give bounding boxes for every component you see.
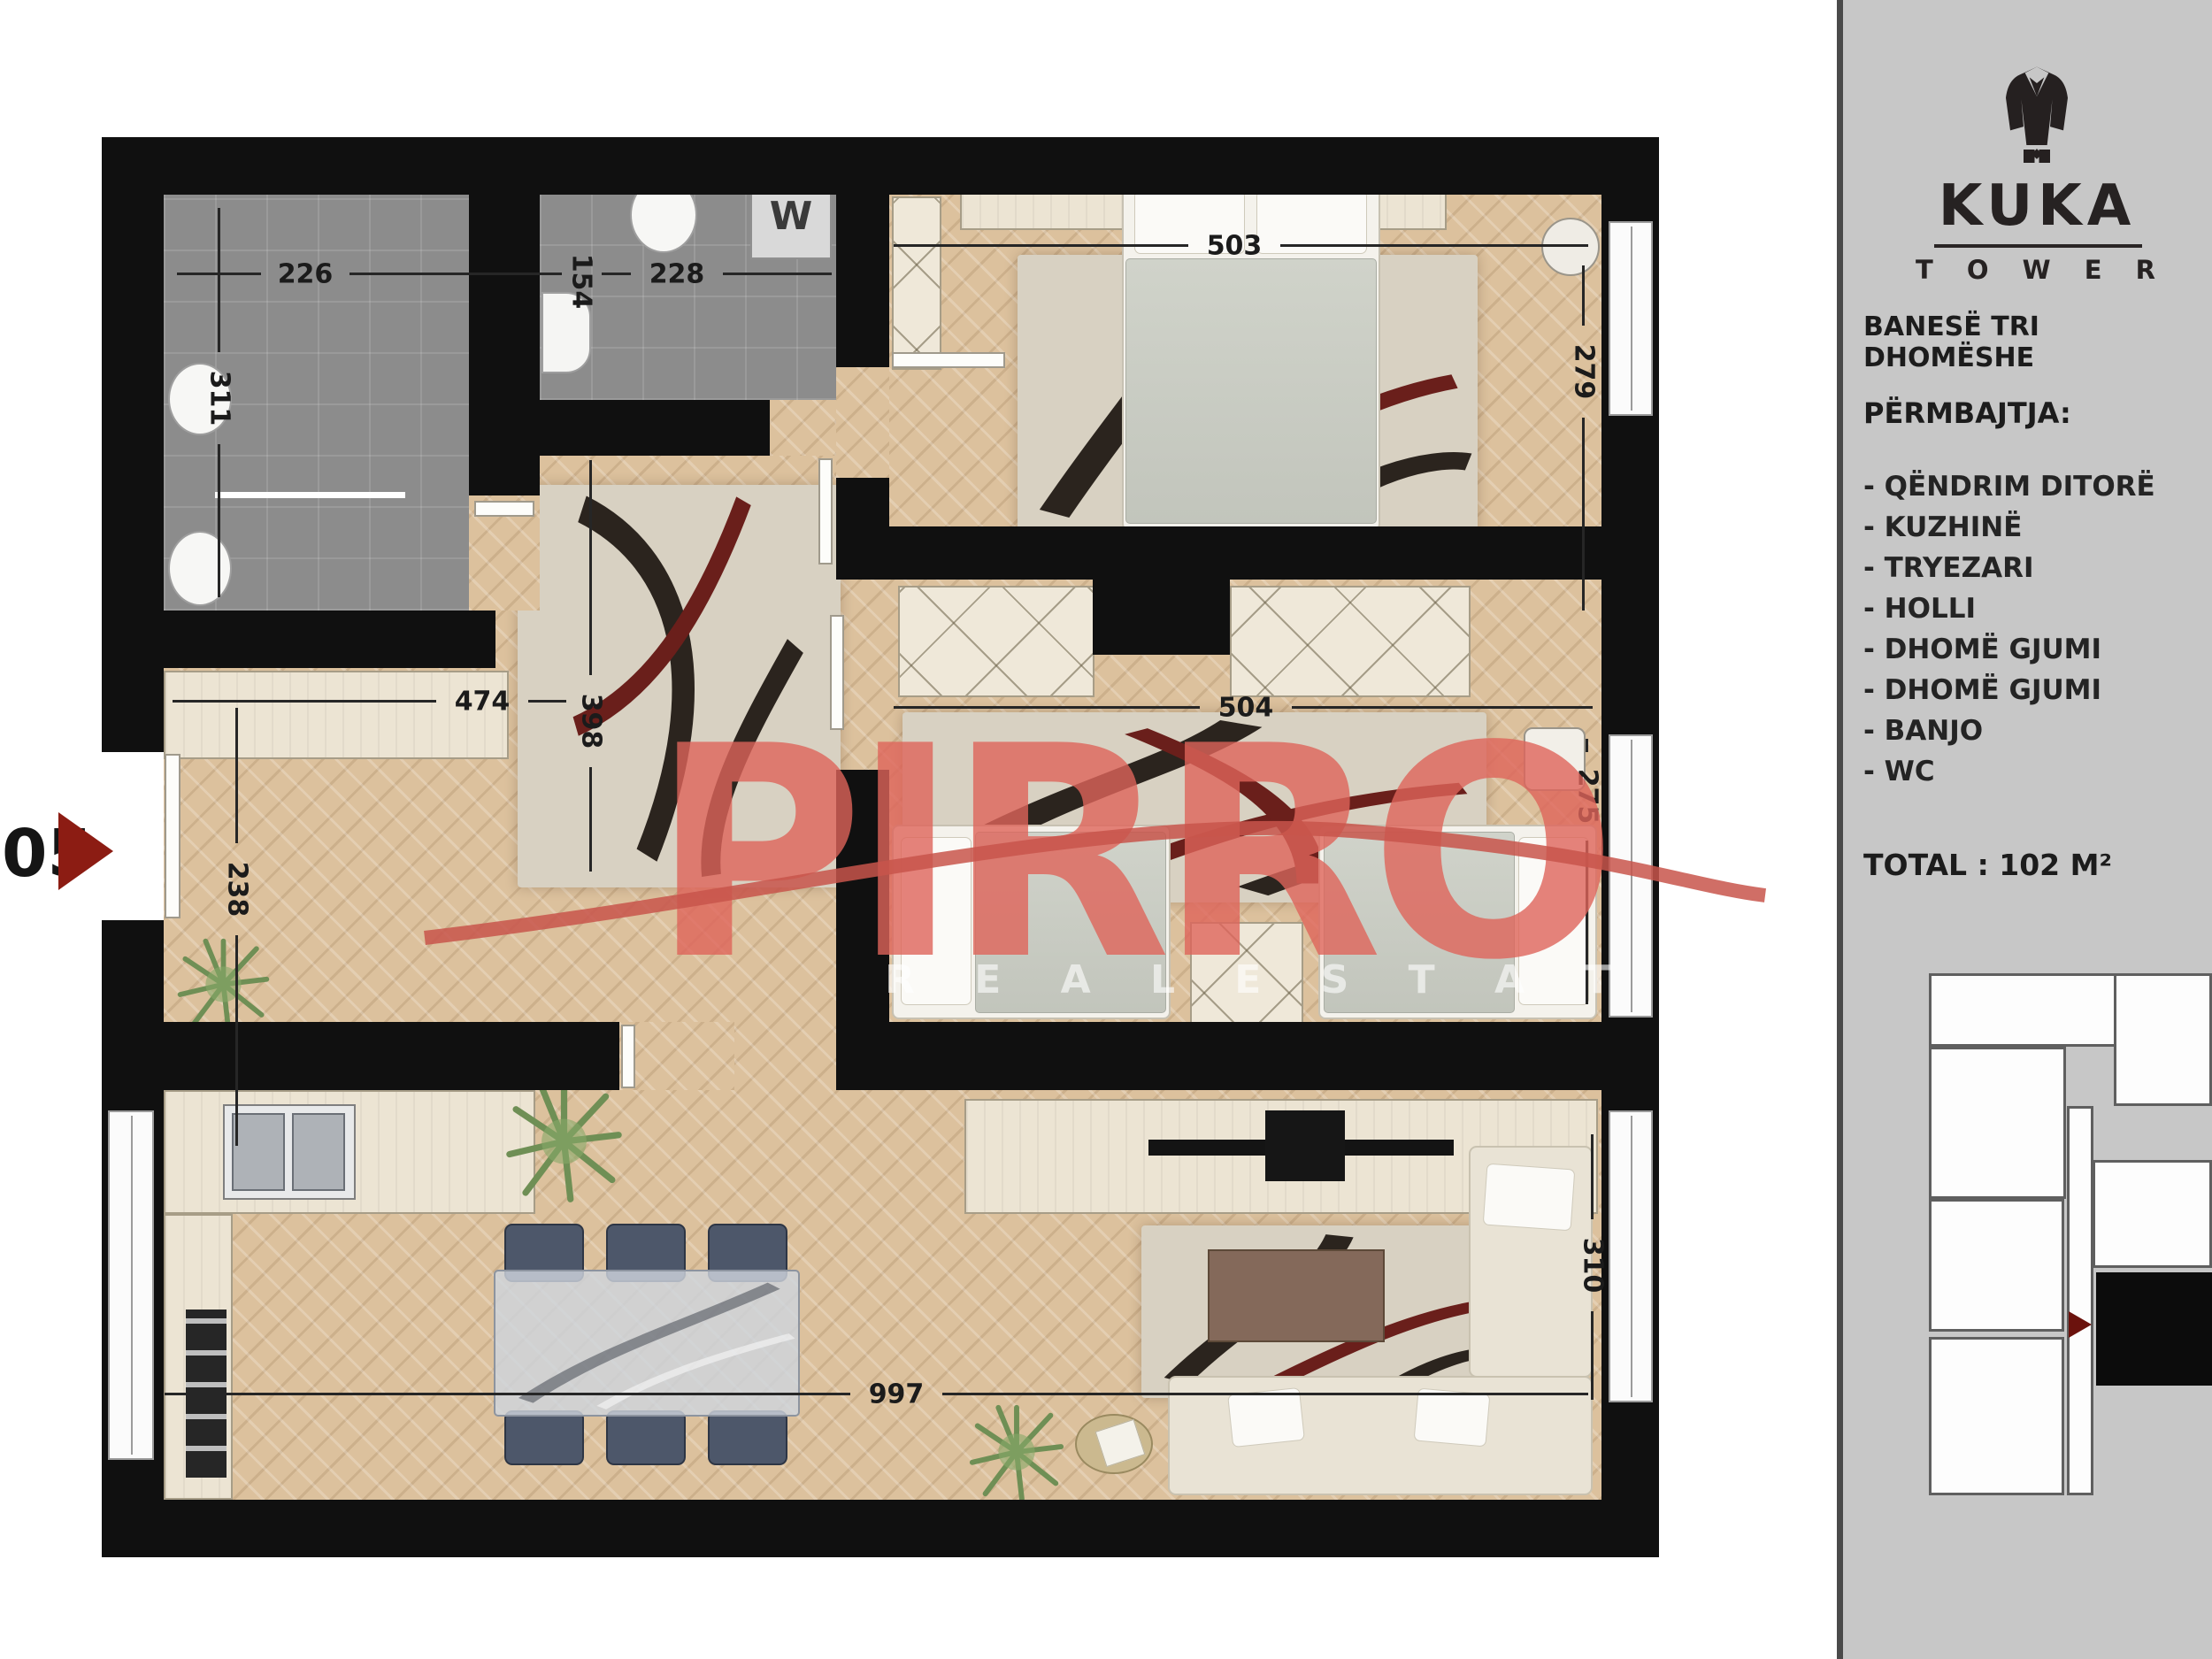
key-plan-unit-highlighted [2096,1272,2212,1386]
sofa-pillow [1227,1387,1305,1448]
key-plan-corridor [2067,1106,2093,1495]
dim-hall-width: 474 [455,687,511,718]
suit-jacket-icon [1993,60,2081,168]
contents-item: - QËNDRIM DITORË [1863,471,2155,503]
kitchen-window [108,1110,154,1460]
dim-line [1280,244,1588,247]
book [1095,1419,1146,1467]
washing-machine-label: W [770,194,813,239]
dim-line [165,1393,850,1395]
key-plan-unit [1929,1337,2064,1495]
bedroom1-door-opening [836,367,889,478]
side-table-with-book [1075,1414,1153,1474]
wall-wc-bottom [495,400,770,456]
dining-chair [708,1410,787,1465]
key-plan-unit [1929,1047,2066,1199]
contents-item: - DHOMË GJUMI [1863,674,2101,706]
floorplan-page: W [0,0,2212,1659]
dim-bathroom-depth: 311 [204,371,235,426]
contents-heading: PËRMBAJTJA: [1863,396,2071,430]
dim-line [173,700,436,703]
dim-hall-depth: 398 [576,694,607,749]
bathroom-door-leaf [474,501,534,517]
bedroom1-nightstand-lamp [1541,218,1600,276]
dim-line [602,273,631,275]
key-plan [1929,973,2212,1495]
contents-item: - TRYEZARI [1863,552,2033,584]
wall-bedroom2-recess [1093,580,1230,655]
kitchen-sink-basin [232,1113,285,1191]
wall-outer-left-upper [102,137,164,752]
sofa-pillow [1483,1164,1576,1232]
entry-door-leaf [165,754,180,918]
bedroom1-door-leaf [892,352,1005,368]
wc-door-opening [770,400,836,456]
bedroom2-closet-left [898,586,1094,697]
brand-subtitle: T O W E R [1911,255,2172,285]
wall-outer-bottom [102,1500,1659,1557]
dim-line [589,460,592,675]
contents-item: - KUZHINË [1863,511,2022,543]
key-plan-unit [2093,1160,2212,1268]
dim-bathroom-width: 226 [278,259,334,290]
dim-line [723,273,832,275]
kitchen-door-opening [619,1022,734,1090]
dim-line [894,244,1188,247]
watermark-brand: PIRRO [650,708,1604,1000]
total-area: TOTAL : 102 M² [1863,848,2112,882]
dim-line [1582,418,1585,611]
key-plan-unit [2114,973,2212,1106]
wall-bath-bottom [164,611,495,668]
dim-line [942,1393,1588,1395]
key-plan-unit [1929,973,2116,1047]
dim-wc-width: 228 [649,259,705,290]
sofa-pillow [1414,1388,1491,1448]
dim-bedroom1-width: 503 [1207,231,1263,262]
apartment-title: BANESË TRI DHOMËSHE [1863,311,2212,373]
key-plan-unit [1929,1199,2064,1332]
kitchen-sink-basin [292,1113,345,1191]
plant [964,1400,1069,1504]
dim-living-width: 997 [869,1379,925,1410]
dining-chair [504,1410,584,1465]
dim-line [1591,1134,1594,1219]
bedroom1-window [1609,221,1653,416]
wall-kitchen-top [102,1022,619,1090]
contents-item: - DHOMË GJUMI [1863,634,2101,665]
wall-bedroom1-left-upper [836,137,889,367]
dim-line [349,273,562,275]
dim-wc-depth: 154 [566,254,597,310]
dim-line [235,935,238,1146]
sidebar-divider [1837,0,1843,1659]
kitchen-door-leaf [621,1025,635,1088]
brand-name: KUKA [1911,173,2163,239]
dim-line [235,708,238,843]
dim-line [218,444,220,597]
plant [173,933,274,1035]
brand-underline [1934,244,2142,248]
bedroom1-duvet [1125,258,1377,524]
dining-chair [606,1410,686,1465]
bathroom-bidet [168,531,232,606]
dim-line [1591,1311,1594,1400]
key-plan-arrow-icon [2069,1311,2092,1338]
dim-entry-depth: 238 [222,862,253,918]
livingroom-window [1609,1110,1653,1402]
wall-bedroom1-left-lower [836,478,889,580]
contents-item: - HOLLI [1863,593,1976,625]
tv-unit [1265,1110,1345,1181]
wall-bedroom2-bottom [889,1022,1659,1090]
bathroom-towel-rail [215,492,405,498]
bedroom1-closet [892,196,941,370]
contents-item: - WC [1863,756,1935,787]
wall-bedroom1-bottom [889,526,1659,580]
dim-living-depth: 310 [1578,1238,1609,1294]
bedroom2-closet-right [1230,586,1471,697]
dim-bedroom1-depth: 279 [1569,344,1600,400]
contents-item: - BANJO [1863,715,1983,747]
entry-arrow-icon [58,812,113,890]
dim-line [218,208,220,352]
wc-door-leaf [818,458,833,565]
plant [500,1075,628,1208]
coffee-table [1208,1249,1385,1342]
dim-line [528,700,566,703]
dim-line [589,767,592,872]
dim-line [1582,265,1585,326]
